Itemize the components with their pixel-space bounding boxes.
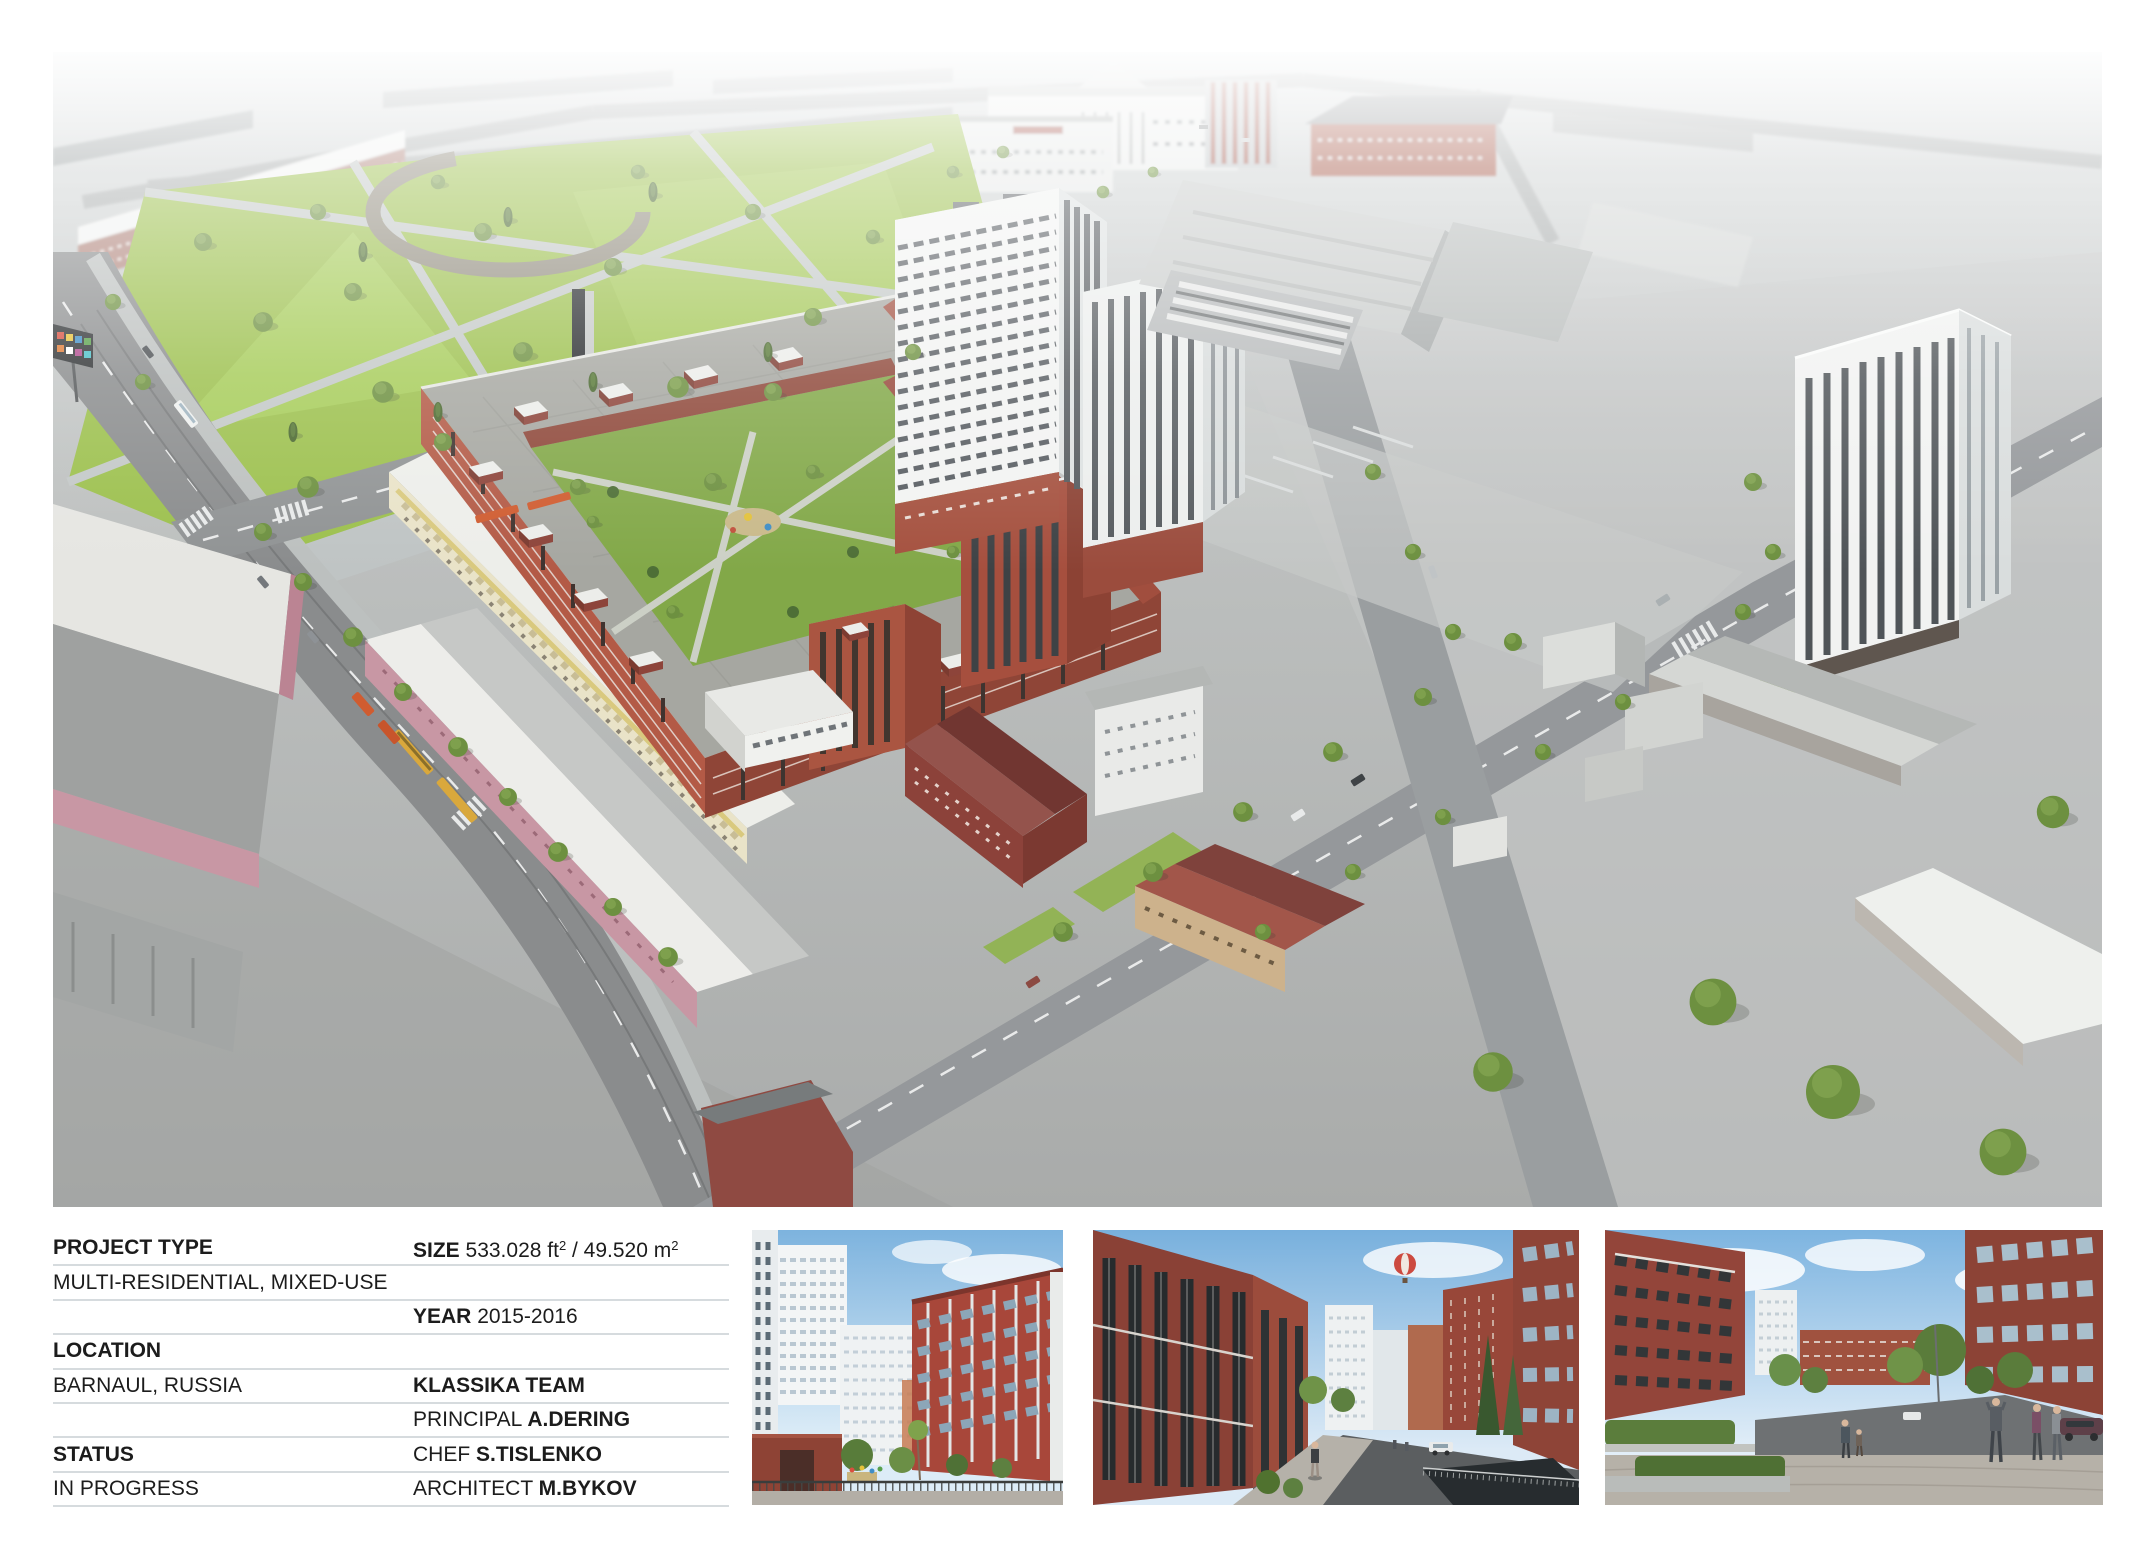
right-brick-facade [1513, 1230, 1579, 1470]
info-cell-right: CHEF S.TISLENKO [413, 1438, 729, 1472]
left-brick-facade [1093, 1230, 1253, 1505]
distant-white-tower [1325, 1305, 1373, 1430]
info-cell-left: MULTI-RESIDENTIAL, MIXED-USE [53, 1266, 413, 1300]
info-cell-left: IN PROGRESS [53, 1472, 413, 1506]
info-cell-left: BARNAUL, RUSSIA [53, 1369, 413, 1403]
info-cell-left: LOCATION [53, 1334, 413, 1368]
info-cell-right: KLASSIKA TEAM [413, 1369, 729, 1403]
info-cell-right: ARCHITECT M.BYKOV [413, 1472, 729, 1506]
info-row-5: BARNAUL, RUSSIAKLASSIKA TEAM [53, 1370, 729, 1404]
info-row-8: IN PROGRESSARCHITECT M.BYKOV [53, 1473, 729, 1507]
info-cell-right: YEAR 2015-2016 [413, 1300, 729, 1334]
hedge [1605, 1420, 1735, 1446]
info-row-4: LOCATION [53, 1335, 729, 1369]
info-row-3: YEAR 2015-2016 [53, 1301, 729, 1335]
aerial-masterplan-scene [53, 52, 2102, 1207]
info-row-2: MULTI-RESIDENTIAL, MIXED-USE [53, 1266, 729, 1300]
project-info-table: PROJECT TYPESIZE 533.028 ft2 / 49.520 m2… [53, 1232, 729, 1507]
main-aerial-render [53, 52, 2102, 1207]
info-row-1: PROJECT TYPESIZE 533.028 ft2 / 49.520 m2 [53, 1232, 729, 1266]
thumbnail-plaza-render [1605, 1230, 2103, 1505]
playground [847, 1472, 877, 1482]
info-row-6: PRINCIPAL A.DERING [53, 1404, 729, 1438]
red-building [912, 1268, 1063, 1482]
portfolio-page: PROJECT TYPESIZE 533.028 ft2 / 49.520 m2… [0, 0, 2153, 1559]
info-cell-right: PRINCIPAL A.DERING [413, 1403, 729, 1437]
info-cell-right: SIZE 533.028 ft2 / 49.520 m2 [413, 1229, 729, 1268]
info-row-7: STATUSCHEF S.TISLENKO [53, 1438, 729, 1472]
thumbnail-courtyard-render [752, 1230, 1063, 1505]
info-cell-left: PROJECT TYPE [53, 1231, 413, 1265]
info-cell-left: STATUS [53, 1438, 413, 1472]
haze-overlay [53, 52, 2102, 1207]
thumbnail-street-render [1093, 1230, 1579, 1505]
